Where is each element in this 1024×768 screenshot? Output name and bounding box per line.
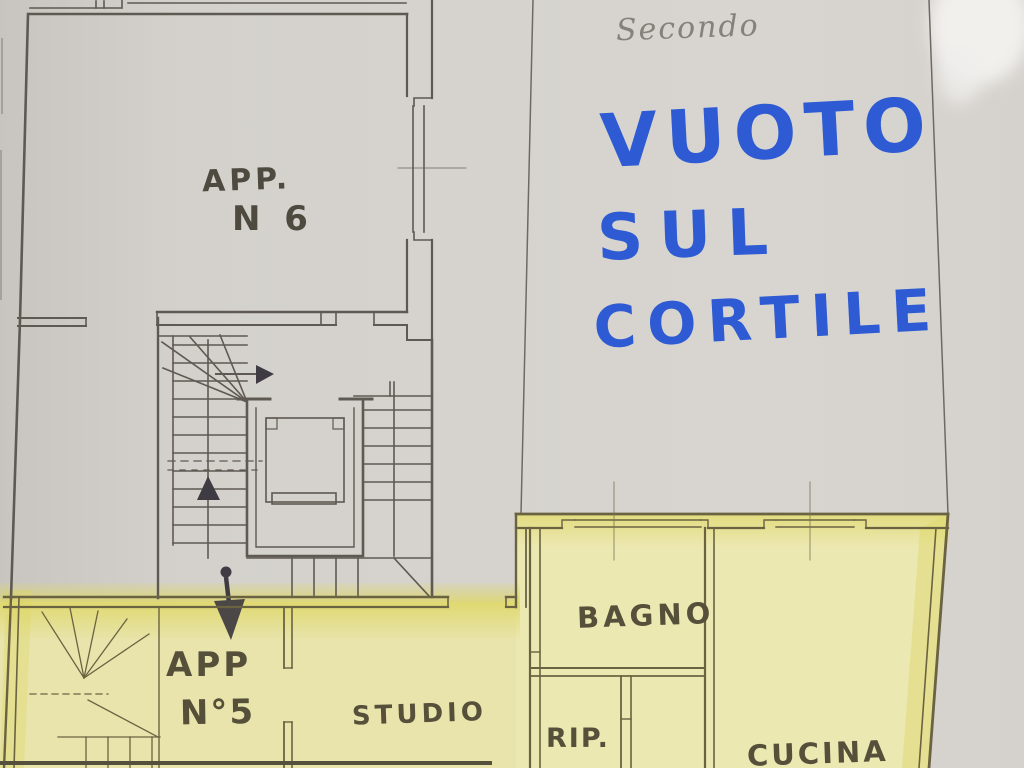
app5-label-line2: N°5 — [180, 692, 256, 733]
app6-label-line2: N 6 — [232, 199, 314, 239]
photo-edge-marks — [1, 38, 2, 300]
app5-label-line1: APP — [166, 645, 251, 685]
bagno-label: BAGNO — [576, 596, 714, 635]
scanned-floor-plan-photo: Secondo VUOTO SUL CORTILE APP. N 6 APP N… — [0, 0, 1024, 768]
rip-label: RIP. — [546, 723, 610, 754]
app6-label-line1: APP. — [201, 161, 291, 199]
floor-plan-svg: Secondo VUOTO SUL CORTILE APP. N 6 APP N… — [0, 0, 1024, 768]
cucina-label: CUCINA — [746, 734, 889, 768]
studio-label: STUDIO — [352, 697, 488, 732]
blue-annotation-line1: VUOTO — [598, 82, 936, 185]
floor-title: Secondo — [615, 8, 760, 48]
blue-annotation-line2: SUL — [596, 195, 785, 275]
